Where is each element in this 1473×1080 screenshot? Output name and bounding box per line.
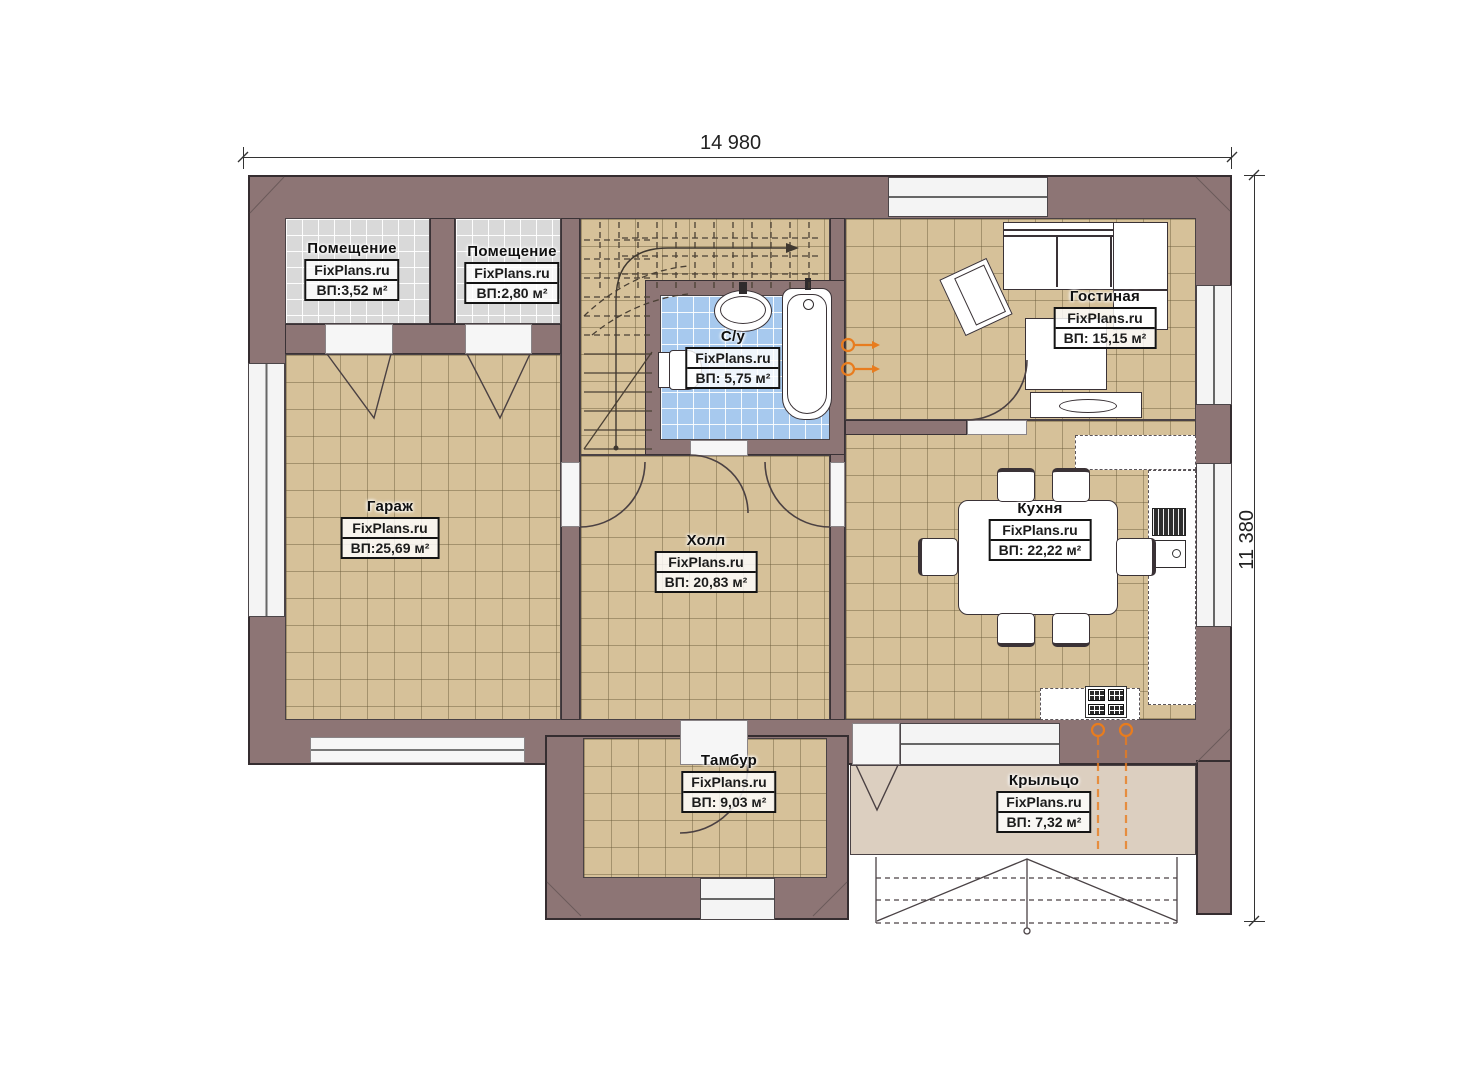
porch-steps: [876, 857, 1177, 934]
window-kitchen-right: [1196, 463, 1232, 627]
bathroom-sink: [714, 290, 772, 332]
dimension-height-label: 11 380: [1236, 510, 1259, 570]
stove-burner: [1108, 704, 1125, 716]
door-opening-storage-2: [465, 324, 532, 354]
dimension-line-top: [243, 157, 1232, 158]
door-opening-garage-hall: [561, 462, 580, 527]
room-area: ВП: 20,83 м²: [657, 573, 756, 591]
window-living-top: [888, 177, 1048, 217]
sink-drain-rack: [1152, 508, 1186, 536]
kitchen-sink-tap: [1172, 549, 1181, 558]
door-opening-porch: [852, 723, 900, 765]
kitchen-counter-top: [1075, 435, 1196, 470]
kitchen-sink: [1152, 540, 1186, 568]
room-area: ВП: 15,15 м²: [1056, 329, 1155, 347]
room-label-storage-1: Помещение FixPlans.ru ВП:3,52 м²: [304, 240, 399, 301]
room-area: ВП:25,69 м²: [343, 539, 438, 557]
watermark-text: FixPlans.ru: [683, 773, 774, 793]
dining-chair: [1116, 538, 1156, 576]
room-label-storage-2: Помещение FixPlans.ru ВП:2,80 м²: [464, 243, 559, 304]
room-area: ВП: 22,22 м²: [991, 541, 1090, 559]
room-label-kitchen: Кухня FixPlans.ru ВП: 22,22 м²: [989, 500, 1092, 561]
wall-porch-right: [1196, 760, 1232, 915]
watermark-box: FixPlans.ru ВП:3,52 м²: [304, 259, 399, 301]
window-garage-left: [248, 363, 285, 617]
bathroom-sink-basin: [720, 296, 766, 324]
dining-chair: [997, 468, 1035, 502]
bathtub: [782, 288, 832, 420]
watermark-box: FixPlans.ru ВП: 22,22 м²: [989, 519, 1092, 561]
door-opening-living-kitchen: [967, 420, 1027, 435]
dimension-width-label: 14 980: [700, 132, 761, 155]
tv-stand: [1030, 392, 1142, 418]
window-living-right: [1196, 285, 1232, 405]
door-opening-storage-1: [325, 324, 393, 354]
watermark-box: FixPlans.ru ВП: 9,03 м²: [681, 771, 776, 813]
room-label-garage: Гараж FixPlans.ru ВП:25,69 м²: [341, 498, 440, 559]
watermark-text: FixPlans.ru: [657, 553, 756, 573]
watermark-text: FixPlans.ru: [998, 793, 1089, 813]
watermark-box: FixPlans.ru ВП:2,80 м²: [464, 262, 559, 304]
window-tambour-bottom: [700, 878, 775, 920]
stove-burner: [1088, 704, 1105, 716]
tv-icon: [1059, 399, 1117, 413]
watermark-box: FixPlans.ru ВП: 15,15 м²: [1054, 307, 1157, 349]
watermark-text: FixPlans.ru: [687, 349, 778, 369]
watermark-box: FixPlans.ru ВП: 20,83 м²: [655, 551, 758, 593]
stove-burner: [1088, 689, 1105, 701]
room-label-hall: Холл FixPlans.ru ВП: 20,83 м²: [655, 532, 758, 593]
room-label-living: Гостиная FixPlans.ru ВП: 15,15 м²: [1054, 288, 1157, 349]
door-opening-hall-kitchen: [830, 462, 845, 527]
bathtub-tap: [803, 299, 814, 310]
dimension-ext-top-left: [243, 147, 244, 169]
door-opening-bathroom: [690, 440, 748, 456]
watermark-box: FixPlans.ru ВП:25,69 м²: [341, 517, 440, 559]
room-area: ВП:3,52 м²: [306, 281, 397, 299]
room-label-porch: Крыльцо FixPlans.ru ВП: 7,32 м²: [996, 772, 1091, 833]
watermark-text: FixPlans.ru: [991, 521, 1090, 541]
stove-burner: [1108, 689, 1125, 701]
stove: [1085, 686, 1127, 718]
wall-living-kitchen: [845, 420, 967, 435]
sofa-cushion-divider: [1056, 237, 1058, 287]
wall-storage-divider: [430, 218, 455, 324]
dimension-ext-right-bottom: [1244, 921, 1265, 922]
bathtub-spout: [805, 278, 811, 290]
dimension-ext-right-top: [1244, 175, 1265, 176]
room-area: ВП: 9,03 м²: [683, 793, 774, 811]
watermark-text: FixPlans.ru: [306, 261, 397, 281]
watermark-box: FixPlans.ru ВП: 5,75 м²: [685, 347, 780, 389]
watermark-text: FixPlans.ru: [343, 519, 438, 539]
bathroom-sink-tap: [739, 282, 747, 294]
room-area: ВП: 7,32 м²: [998, 813, 1089, 831]
room-area: ВП:2,80 м²: [466, 284, 557, 302]
window-kitchen-porch: [900, 723, 1060, 765]
dining-chair: [997, 613, 1035, 647]
watermark-text: FixPlans.ru: [1056, 309, 1155, 329]
watermark-box: FixPlans.ru ВП: 7,32 м²: [996, 791, 1091, 833]
watermark-text: FixPlans.ru: [466, 264, 557, 284]
bathtub-inner: [787, 294, 827, 414]
room-label-tambour: Тамбур FixPlans.ru ВП: 9,03 м²: [681, 752, 776, 813]
room-label-bathroom: С/у FixPlans.ru ВП: 5,75 м²: [685, 328, 780, 389]
dimension-ext-top-right: [1231, 147, 1232, 169]
dining-chair: [1052, 468, 1090, 502]
garage-door-opening: [310, 737, 525, 763]
dining-chair: [1052, 613, 1090, 647]
sofa-cushion-divider: [1110, 237, 1112, 287]
dining-chair: [918, 538, 958, 576]
floor-plan-canvas: 14 980 11 380: [0, 0, 1473, 1080]
kitchen-counter-right: [1148, 470, 1196, 705]
room-area: ВП: 5,75 м²: [687, 369, 778, 387]
